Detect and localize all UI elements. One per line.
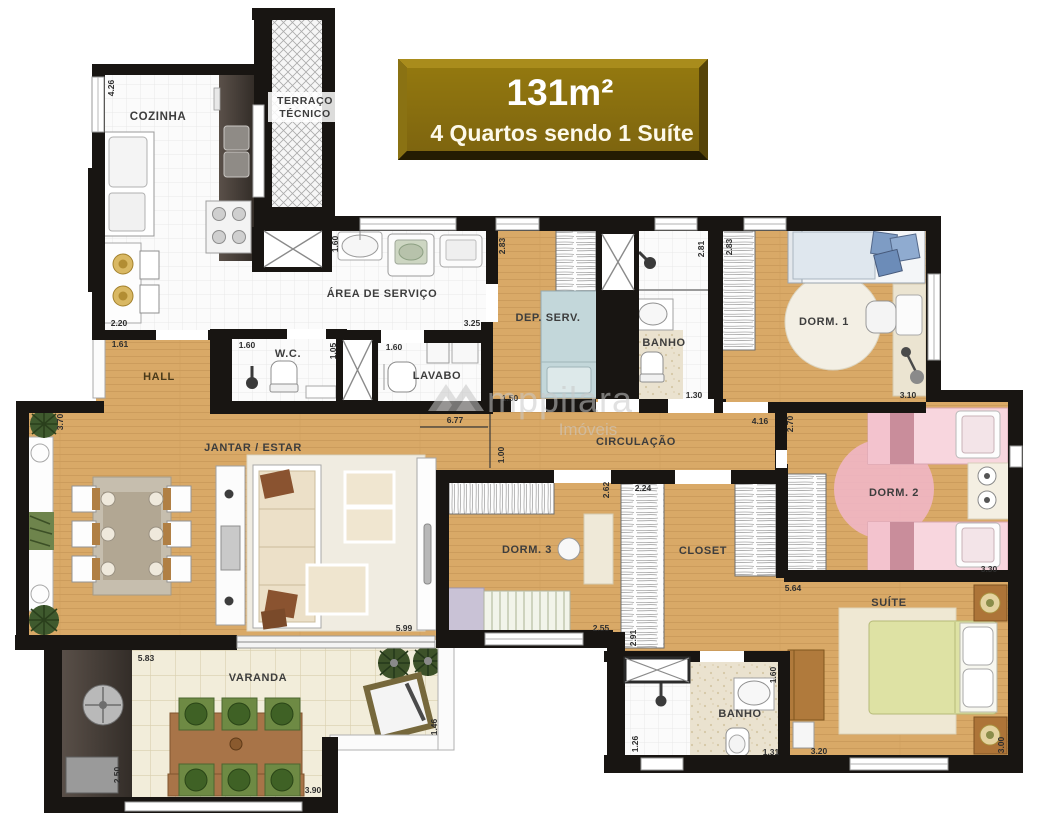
svg-text:2.70: 2.70 xyxy=(785,415,795,432)
svg-text:5.64: 5.64 xyxy=(785,583,802,593)
svg-text:131m²: 131m² xyxy=(507,72,614,113)
svg-text:2.83: 2.83 xyxy=(724,238,734,255)
svg-text:4 Quartos sendo 1 Suíte: 4 Quartos sendo 1 Suíte xyxy=(430,120,693,146)
svg-text:CLOSET: CLOSET xyxy=(679,545,727,557)
svg-text:2.20: 2.20 xyxy=(111,318,128,328)
svg-text:DORM. 3: DORM. 3 xyxy=(502,544,552,556)
svg-text:BANHO: BANHO xyxy=(642,337,685,349)
svg-text:BANHO: BANHO xyxy=(718,708,761,720)
svg-text:1.60: 1.60 xyxy=(330,235,340,252)
svg-text:VARANDA: VARANDA xyxy=(229,672,287,684)
svg-text:1.46: 1.46 xyxy=(429,718,439,735)
svg-text:3.00: 3.00 xyxy=(996,736,1006,753)
svg-text:4.26: 4.26 xyxy=(106,79,116,96)
svg-text:4.16: 4.16 xyxy=(752,416,769,426)
svg-text:DORM. 2: DORM. 2 xyxy=(869,487,919,499)
svg-text:2.55: 2.55 xyxy=(593,623,610,633)
svg-text:3.10: 3.10 xyxy=(900,390,917,400)
svg-text:2.62: 2.62 xyxy=(601,481,611,498)
svg-text:2.24: 2.24 xyxy=(635,483,652,493)
svg-text:3.25: 3.25 xyxy=(464,318,481,328)
svg-text:DEP. SERV.: DEP. SERV. xyxy=(515,312,580,324)
svg-text:1.26: 1.26 xyxy=(630,735,640,752)
svg-text:5.99: 5.99 xyxy=(396,623,413,633)
svg-text:3.20: 3.20 xyxy=(811,746,828,756)
svg-text:2.50: 2.50 xyxy=(112,766,122,783)
svg-text:1.61: 1.61 xyxy=(112,339,129,349)
svg-text:1.05: 1.05 xyxy=(328,342,338,359)
svg-text:1.00: 1.00 xyxy=(496,446,506,463)
svg-text:ÁREA DE SERVIÇO: ÁREA DE SERVIÇO xyxy=(327,287,437,300)
svg-text:3.70: 3.70 xyxy=(55,413,65,430)
svg-text:HALL: HALL xyxy=(143,371,175,383)
svg-text:COZINHA: COZINHA xyxy=(130,111,187,123)
svg-text:1.60: 1.60 xyxy=(239,340,256,350)
svg-text:3.90: 3.90 xyxy=(305,785,322,795)
svg-text:W.C.: W.C. xyxy=(275,348,301,360)
svg-text:mppilara: mppilara xyxy=(487,379,633,420)
svg-text:2.91: 2.91 xyxy=(628,629,638,646)
svg-text:5.83: 5.83 xyxy=(138,653,155,663)
svg-text:SUÍTE: SUÍTE xyxy=(871,596,906,609)
svg-text:LAVABO: LAVABO xyxy=(413,370,461,382)
svg-text:1.30: 1.30 xyxy=(686,390,703,400)
svg-text:6.77: 6.77 xyxy=(447,415,464,425)
svg-text:JANTAR / ESTAR: JANTAR / ESTAR xyxy=(204,442,302,454)
svg-text:TÉCNICO: TÉCNICO xyxy=(279,107,330,120)
svg-text:TERRAÇO: TERRAÇO xyxy=(277,95,333,107)
svg-text:1.60: 1.60 xyxy=(386,342,403,352)
svg-text:Imóveis: Imóveis xyxy=(559,420,618,439)
svg-text:1.31: 1.31 xyxy=(763,747,780,757)
svg-text:3.30: 3.30 xyxy=(981,564,998,574)
svg-text:1.60: 1.60 xyxy=(768,666,778,683)
svg-text:2.83: 2.83 xyxy=(497,237,507,254)
svg-text:2.81: 2.81 xyxy=(696,240,706,257)
svg-text:DORM. 1: DORM. 1 xyxy=(799,316,849,328)
